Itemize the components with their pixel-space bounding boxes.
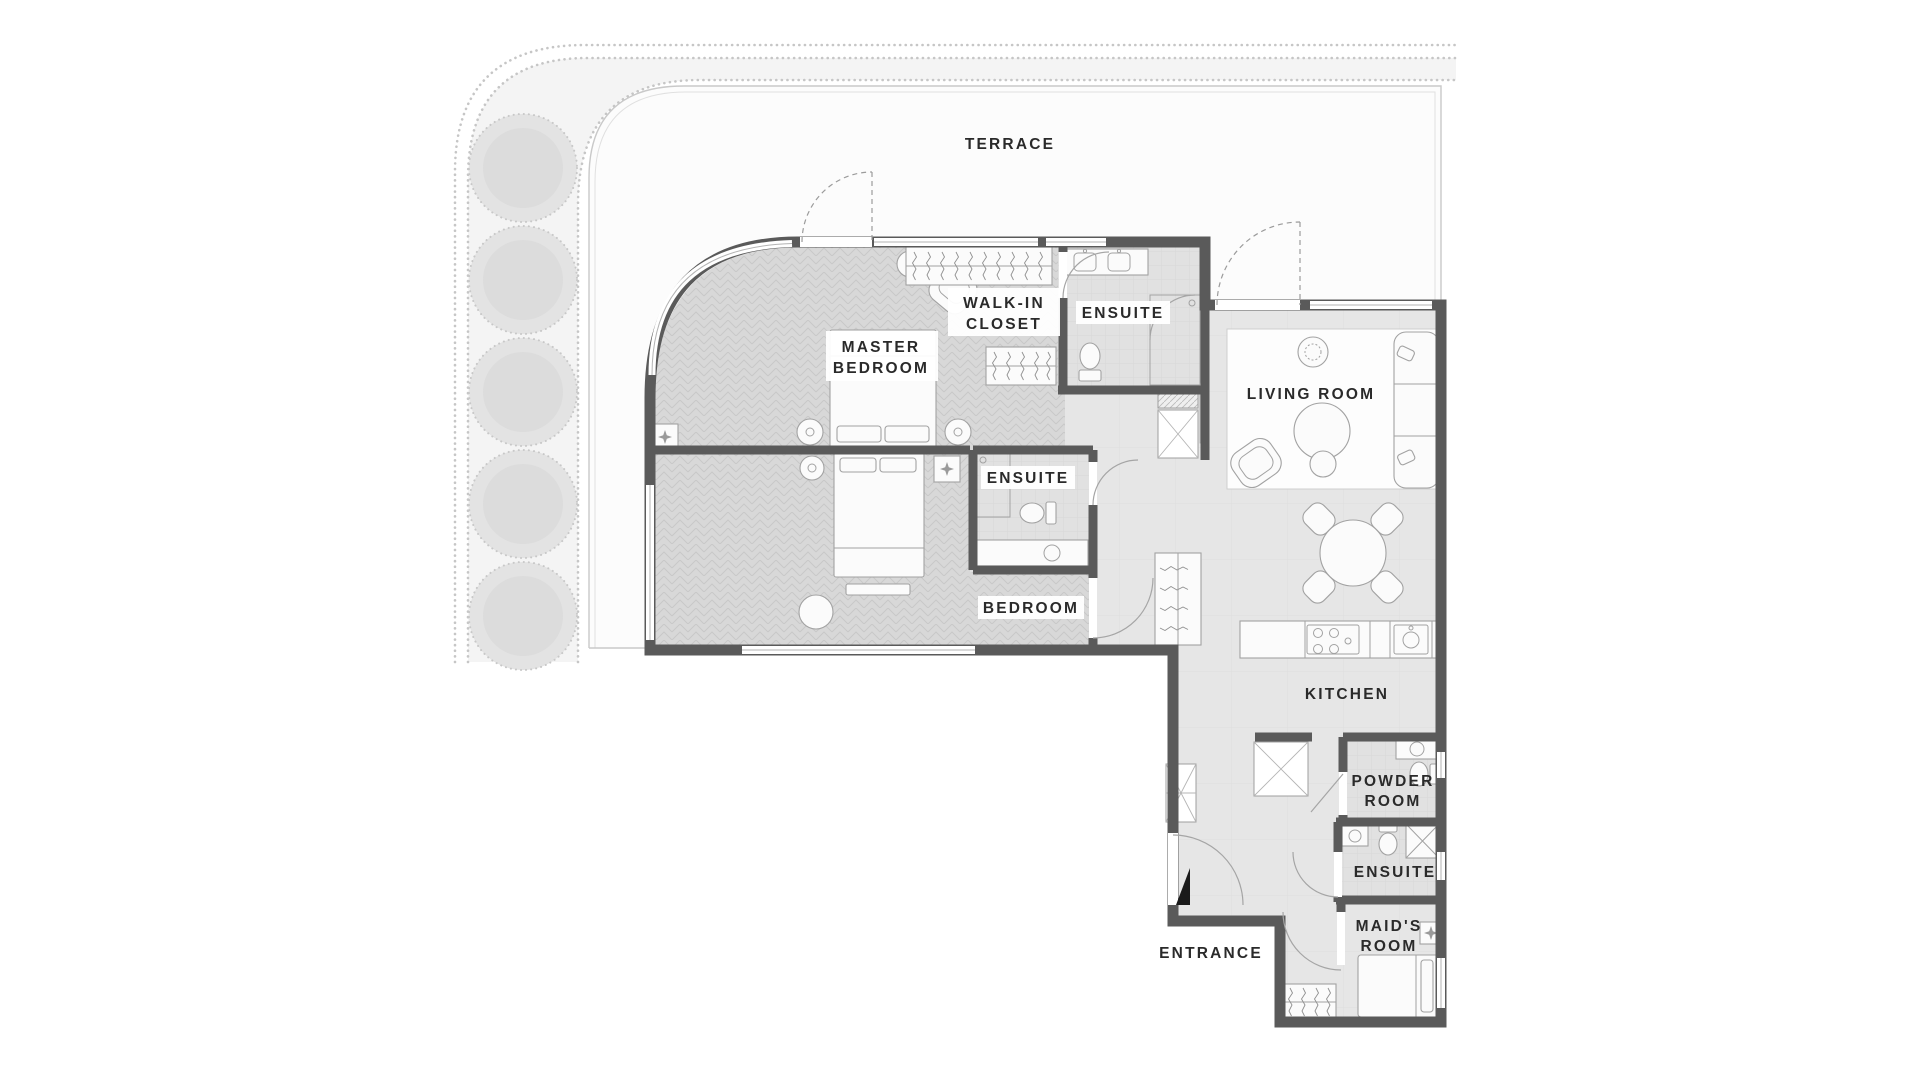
door-opening (1089, 578, 1097, 638)
label-powder-room-1: POWDER (1352, 773, 1435, 790)
double-vanity (1066, 249, 1148, 275)
svg-text:ENSUITE: ENSUITE (987, 470, 1070, 487)
maid-bed (1358, 955, 1438, 1017)
label-powder-room-2: ROOM (1364, 793, 1421, 810)
entrance-door-opening (1168, 833, 1178, 905)
bed (834, 453, 924, 577)
label-maids-room-1: MAID'S (1356, 918, 1423, 935)
label-walk-in-closet: WALK-IN CLOSET (948, 288, 1060, 336)
tree-icon (469, 114, 577, 222)
wardrobe (1282, 984, 1336, 1020)
nightstand (797, 419, 823, 445)
nightstand (800, 456, 824, 480)
tree-icon (469, 450, 577, 558)
label-bedroom: BEDROOM (978, 596, 1084, 619)
door-opening (1334, 852, 1342, 897)
tree-icon (469, 338, 577, 446)
tree-icon (469, 562, 577, 670)
svg-text:BEDROOM: BEDROOM (833, 360, 929, 377)
svg-text:CLOSET: CLOSET (966, 316, 1042, 333)
svg-text:ENSUITE: ENSUITE (1082, 305, 1165, 322)
label-living-room: LIVING ROOM (1247, 386, 1375, 403)
svg-text:WALK-IN: WALK-IN (963, 295, 1045, 312)
door-opening (1339, 772, 1347, 815)
side-table (1310, 451, 1336, 477)
label-ensuite-maid: ENSUITE (1354, 864, 1437, 881)
label-ensuite-bedroom: ENSUITE (981, 466, 1075, 489)
label-terrace: TERRACE (965, 136, 1055, 153)
wardrobe (906, 247, 1052, 285)
label-entrance: ENTRANCE (1159, 945, 1263, 962)
terrace-door-opening (1215, 300, 1300, 310)
tree-icon (469, 226, 577, 334)
nightstand (945, 419, 971, 445)
basket (1298, 337, 1328, 367)
svg-text:BEDROOM: BEDROOM (983, 600, 1079, 617)
vanity (976, 540, 1088, 566)
toilet-icon (1079, 343, 1101, 381)
kitchen-counter (1240, 621, 1438, 658)
dining-table (1320, 520, 1386, 586)
shaft-box (1158, 410, 1198, 458)
label-kitchen: KITCHEN (1305, 686, 1389, 703)
floor-plan-page: TERRACE (0, 0, 1920, 1080)
label-master-bedroom: MASTER BEDROOM (826, 331, 938, 381)
svg-text:MASTER: MASTER (842, 339, 921, 356)
wardrobe (986, 347, 1056, 385)
shower (1406, 824, 1439, 858)
terrace-door-opening (800, 237, 872, 247)
hall-closet (1155, 553, 1201, 645)
floor-plan-drawing: TERRACE (0, 0, 1920, 1080)
shaft-box (1254, 742, 1308, 796)
ac-diffuser-icon (934, 456, 960, 482)
bench (846, 584, 910, 595)
door-opening (1337, 912, 1345, 965)
label-ensuite-master: ENSUITE (1076, 301, 1170, 324)
sofa (1394, 332, 1439, 488)
trees (469, 114, 577, 670)
pouf (799, 595, 833, 629)
label-maids-room-2: ROOM (1360, 938, 1417, 955)
toilet-icon (1020, 502, 1056, 524)
